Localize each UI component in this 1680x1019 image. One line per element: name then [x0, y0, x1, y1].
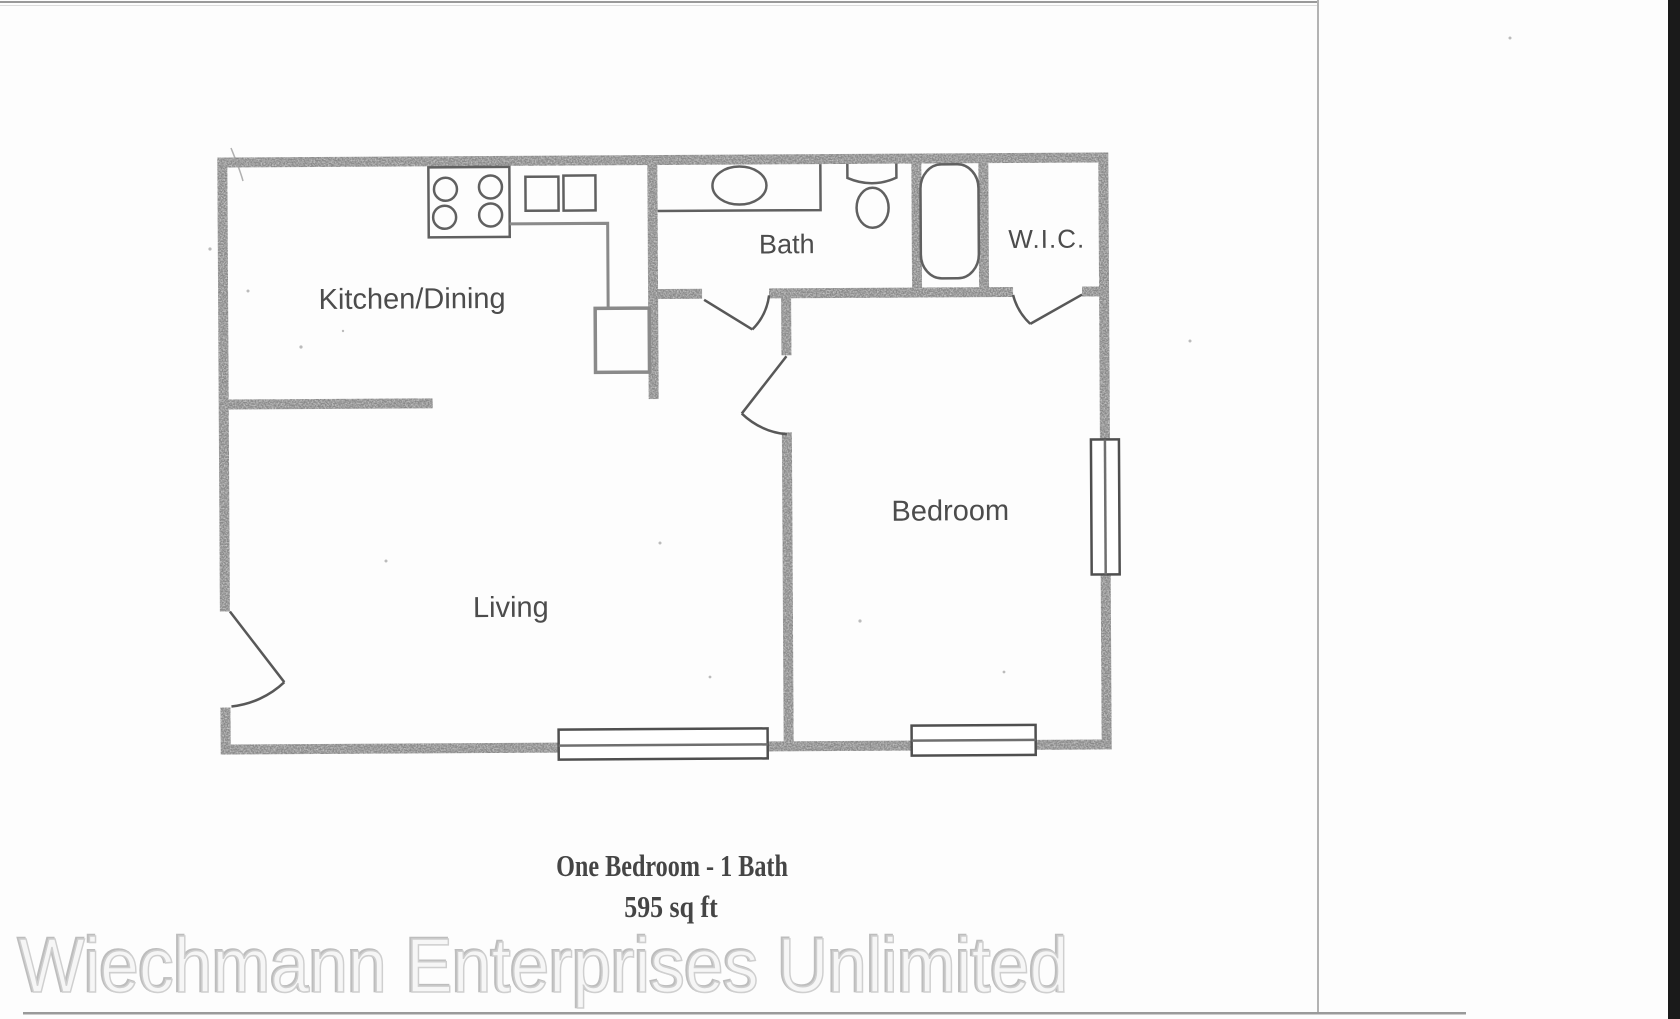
svg-text:Bath: Bath — [759, 229, 815, 259]
svg-text:W.I.C.: W.I.C. — [1008, 224, 1085, 254]
svg-text:One Bedroom - 1 Bath: One Bedroom - 1 Bath — [556, 849, 788, 884]
svg-text:595 sq ft: 595 sq ft — [624, 891, 718, 925]
svg-text:Living: Living — [473, 592, 549, 624]
svg-text:Wiechmann Enterprises Unlimite: Wiechmann Enterprises Unlimited — [19, 923, 1068, 1009]
svg-text:Kitchen/Dining: Kitchen/Dining — [319, 283, 506, 316]
svg-text:Bedroom: Bedroom — [891, 495, 1009, 528]
